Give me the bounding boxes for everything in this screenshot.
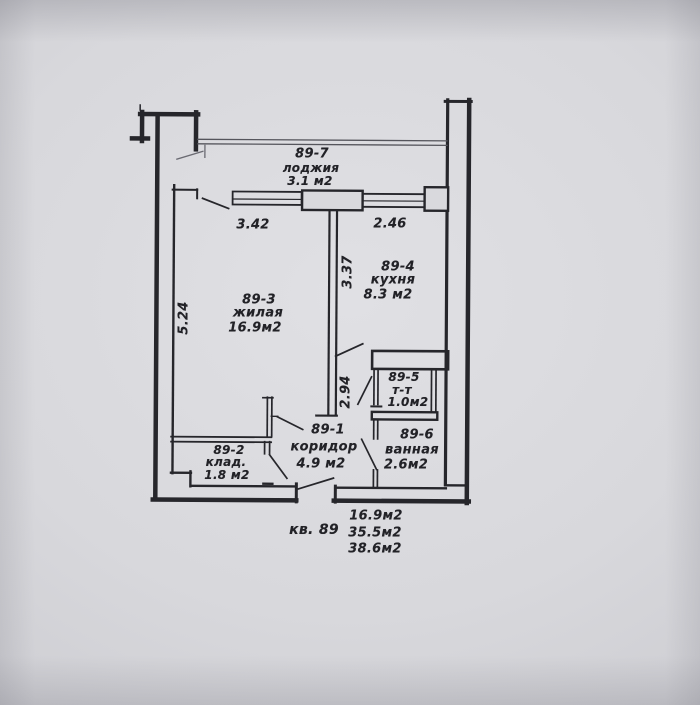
door-swing-storage (269, 455, 287, 479)
dim-corridor-depth: 2.94 (339, 375, 354, 408)
room-storage-area: 1.8 м2 (204, 468, 249, 482)
room-bathroom-name: ванная (385, 443, 439, 458)
apartment-number: кв. 89 (289, 522, 339, 538)
wall-toilet-left (371, 369, 381, 406)
room-loggia-area: 3.1 м2 (287, 174, 332, 188)
loggia-side-door-mark (177, 145, 205, 159)
room-loggia-name: лоджия (283, 161, 340, 175)
room-kitchen-area: 8.3 м2 (363, 288, 412, 303)
summary-total-area: 38.6м2 (348, 542, 402, 557)
wall-toilet-bathroom (372, 412, 438, 420)
wall-living-kitchen (316, 210, 338, 416)
wall-outer-bottom (153, 471, 469, 503)
room-storage-name: клад. (206, 455, 247, 469)
wall-toilet-right (431, 370, 436, 412)
wall-living-door-jamb (263, 397, 278, 437)
wall-bathroom-left (373, 419, 377, 487)
dim-living-width: 3.42 (236, 218, 269, 233)
wall-outer-right (443, 100, 471, 503)
summary-living-area: 16.9м2 (349, 509, 403, 524)
room-bathroom-area: 2.6м2 (384, 458, 428, 473)
room-toilet-area: 1.0м2 (388, 395, 429, 409)
window-living (233, 192, 302, 205)
dim-kitchen-depth: 3.37 (341, 255, 356, 288)
wall-living-top-step (173, 189, 198, 198)
dim-kitchen-width: 2.46 (373, 217, 406, 232)
floorplan-photo: 89-7 лоджия 3.1 м2 3.42 2.46 5.24 3.37 2… (0, 0, 700, 705)
room-loggia-number: 89-7 (295, 147, 329, 162)
room-corridor-area: 4.9 м2 (296, 457, 345, 472)
door-swing-entrance (298, 478, 333, 489)
wall-loggia-outer (198, 139, 447, 145)
floorplan-drawing (0, 0, 700, 705)
room-living-area: 16.9м2 (228, 321, 282, 336)
door-swing-living (277, 417, 303, 430)
door-swing-toilet (358, 377, 372, 405)
dim-living-depth: 5.24 (177, 301, 192, 334)
room-toilet-number: 89-5 (388, 370, 419, 384)
window-end-block (425, 187, 449, 211)
door-swing-bathroom (361, 439, 376, 469)
balcony-door-block (302, 190, 363, 210)
summary-usable-area: 35.5м2 (348, 526, 402, 541)
door-swing-kitchen (336, 344, 363, 357)
wall-top-left-protrusion (132, 105, 198, 149)
wall-kitchen-bottom (372, 351, 448, 369)
room-living-name: жилая (233, 306, 283, 321)
room-corridor-number: 89-1 (311, 423, 345, 438)
room-corridor-name: коридор (290, 440, 357, 455)
room-kitchen-name: кухня (371, 273, 416, 288)
door-swing-loggia (203, 198, 229, 208)
wall-storage-right (263, 442, 272, 484)
window-kitchen (363, 194, 425, 207)
wall-living-bottom (171, 437, 271, 443)
room-bathroom-number: 89-6 (400, 428, 434, 443)
